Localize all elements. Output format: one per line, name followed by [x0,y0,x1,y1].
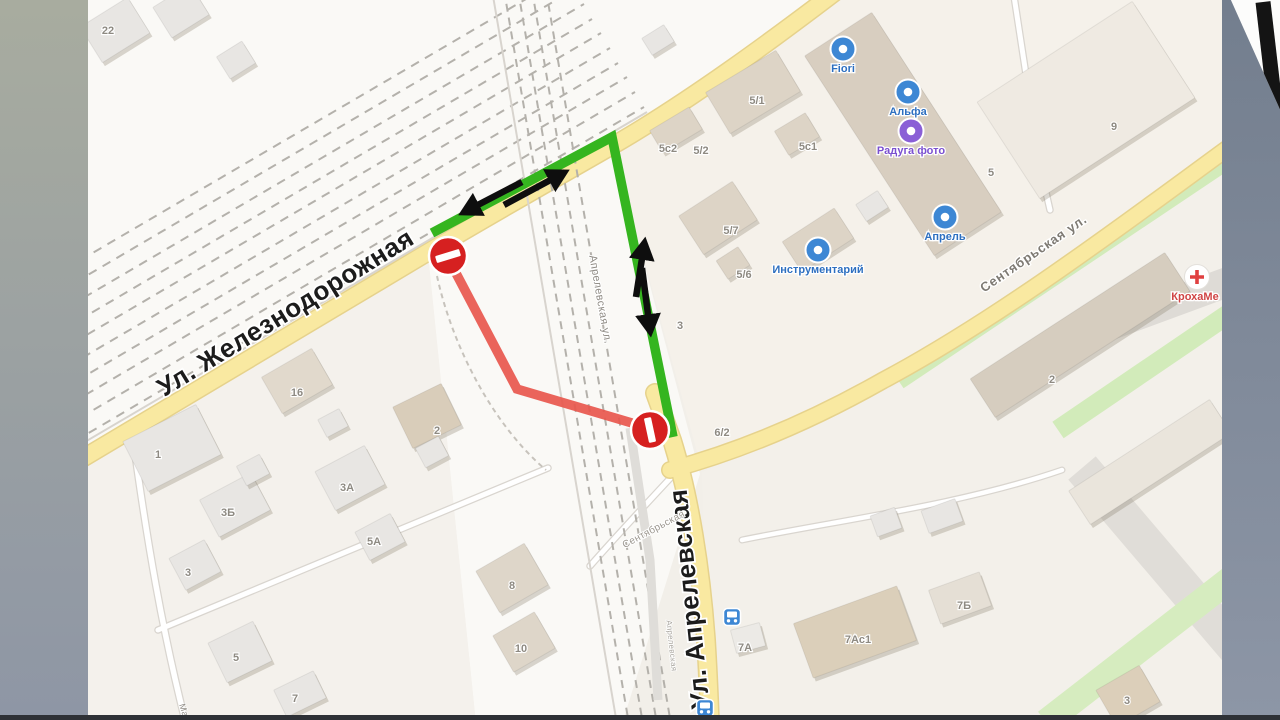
train-icon-window [700,703,710,709]
building-number: 5с1 [799,141,817,153]
building-number: 22 [102,25,114,37]
no-entry-sign [631,411,669,449]
poi-label: Fiori [831,63,855,75]
building-number: 5/2 [693,145,708,157]
building-number: 7Ас1 [845,634,871,646]
building-number: 2 [1049,374,1055,386]
poi-label: Апрель [924,231,965,243]
slide-right-band [1222,0,1280,720]
train-icon-wheel [700,710,703,713]
slide-bottom-edge [0,715,1280,720]
building-number: 7Б [957,600,971,612]
building-number: 16 [291,387,303,399]
no-entry-sign [429,237,467,275]
building-number: 7 [292,693,298,705]
building-number: 5 [233,652,239,664]
building-number: 3 [677,320,683,332]
building-number: 5/1 [749,95,764,107]
train-icon-wheel [707,710,710,713]
poi-label: Радуга фото [877,145,945,157]
tools-glyph [814,246,823,255]
building-number: 5/7 [723,225,738,237]
building-number: 5 [988,167,994,179]
building-number: 9 [1111,121,1117,133]
building-number: 5с2 [659,143,677,155]
poi-flower-shop: Fiori [831,37,856,76]
building-number: 5/6 [736,269,751,281]
building-number: 10 [515,643,527,655]
shop-glyph [904,88,913,97]
building-number: 3 [1124,695,1130,707]
pharmacy-glyph [941,213,950,222]
building-number: 2 [434,425,440,437]
suburban-train-icon [724,609,741,626]
building-number: 3А [340,482,354,494]
building-number: 5А [367,536,381,548]
train-icon-wheel [734,619,737,622]
building-number: 6/2 [714,427,729,439]
building-number: 1 [155,449,161,461]
map-canvas: 2216213Б3А5А3578105/15с25/25с1595/75/636… [0,0,1280,720]
flower-shop-glyph [839,45,848,54]
suburban-train-icon [697,700,714,717]
poi-label: Альфа [889,106,927,118]
detour-map-slide: 2216213Б3А5А3578105/15с25/25с1595/75/636… [0,0,1280,720]
train-icon-wheel [727,619,730,622]
building-number: 8 [509,580,515,592]
photo-glyph [907,127,916,136]
poi-label: КрохаМе [1171,291,1218,303]
slide-left-band [0,0,88,720]
map-layer: 2216213Б3А5А3578105/15с25/25с1595/75/636… [0,0,1280,720]
building-number: 7А [738,642,752,654]
poi-label: Инструментарий [772,264,863,276]
building-number: 3 [185,567,191,579]
building-number: 3Б [221,507,235,519]
train-icon-window [727,612,737,618]
